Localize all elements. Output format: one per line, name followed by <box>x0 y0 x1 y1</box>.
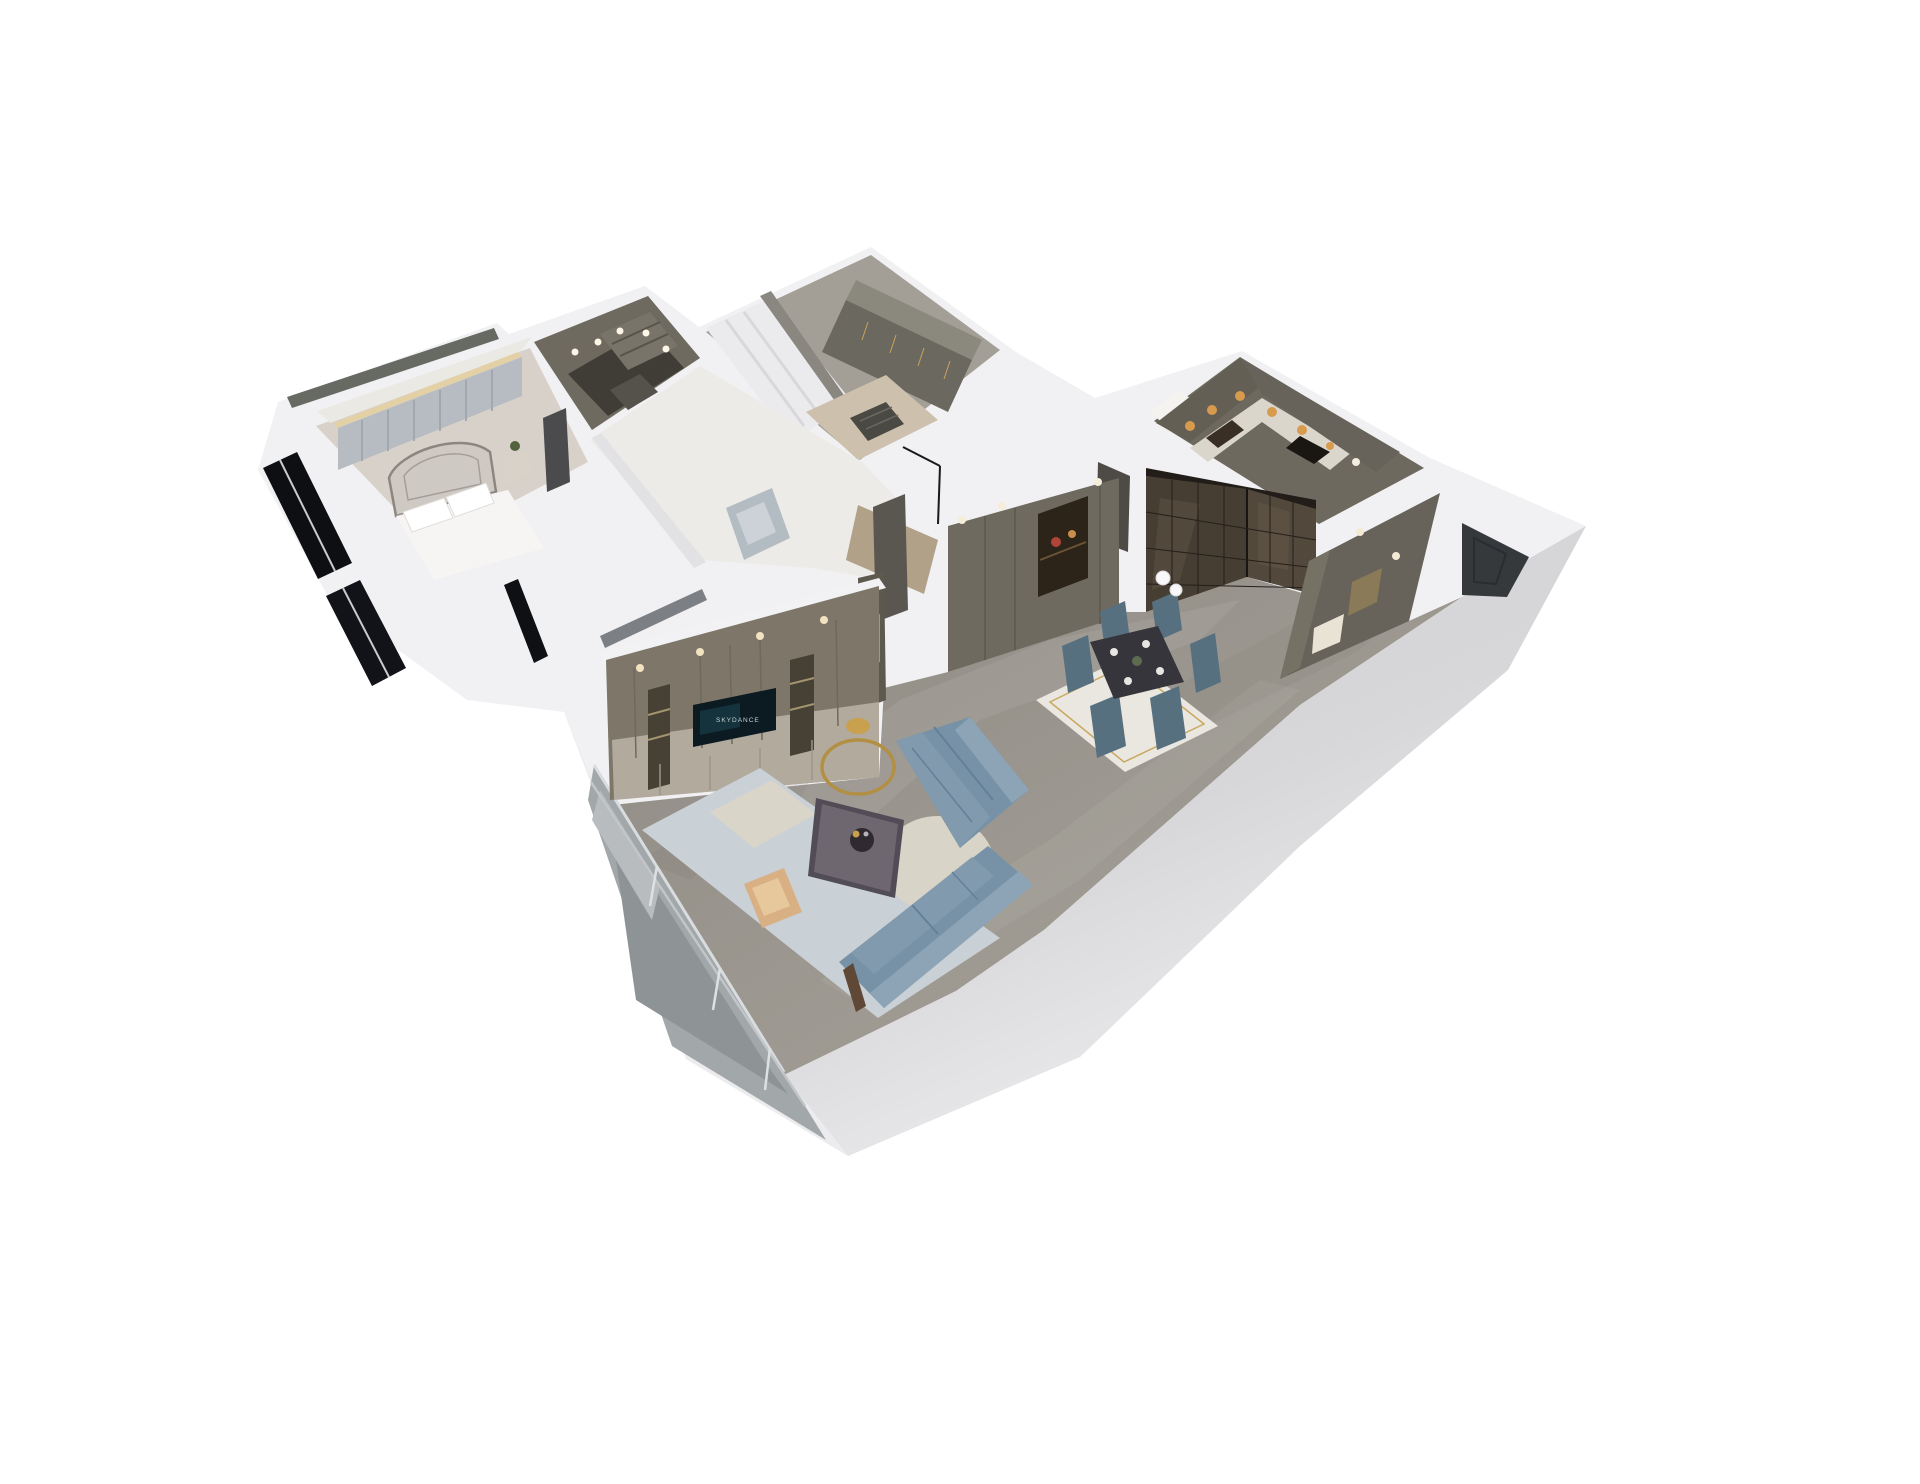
svg-text:SKYDANCE: SKYDANCE <box>716 717 760 724</box>
